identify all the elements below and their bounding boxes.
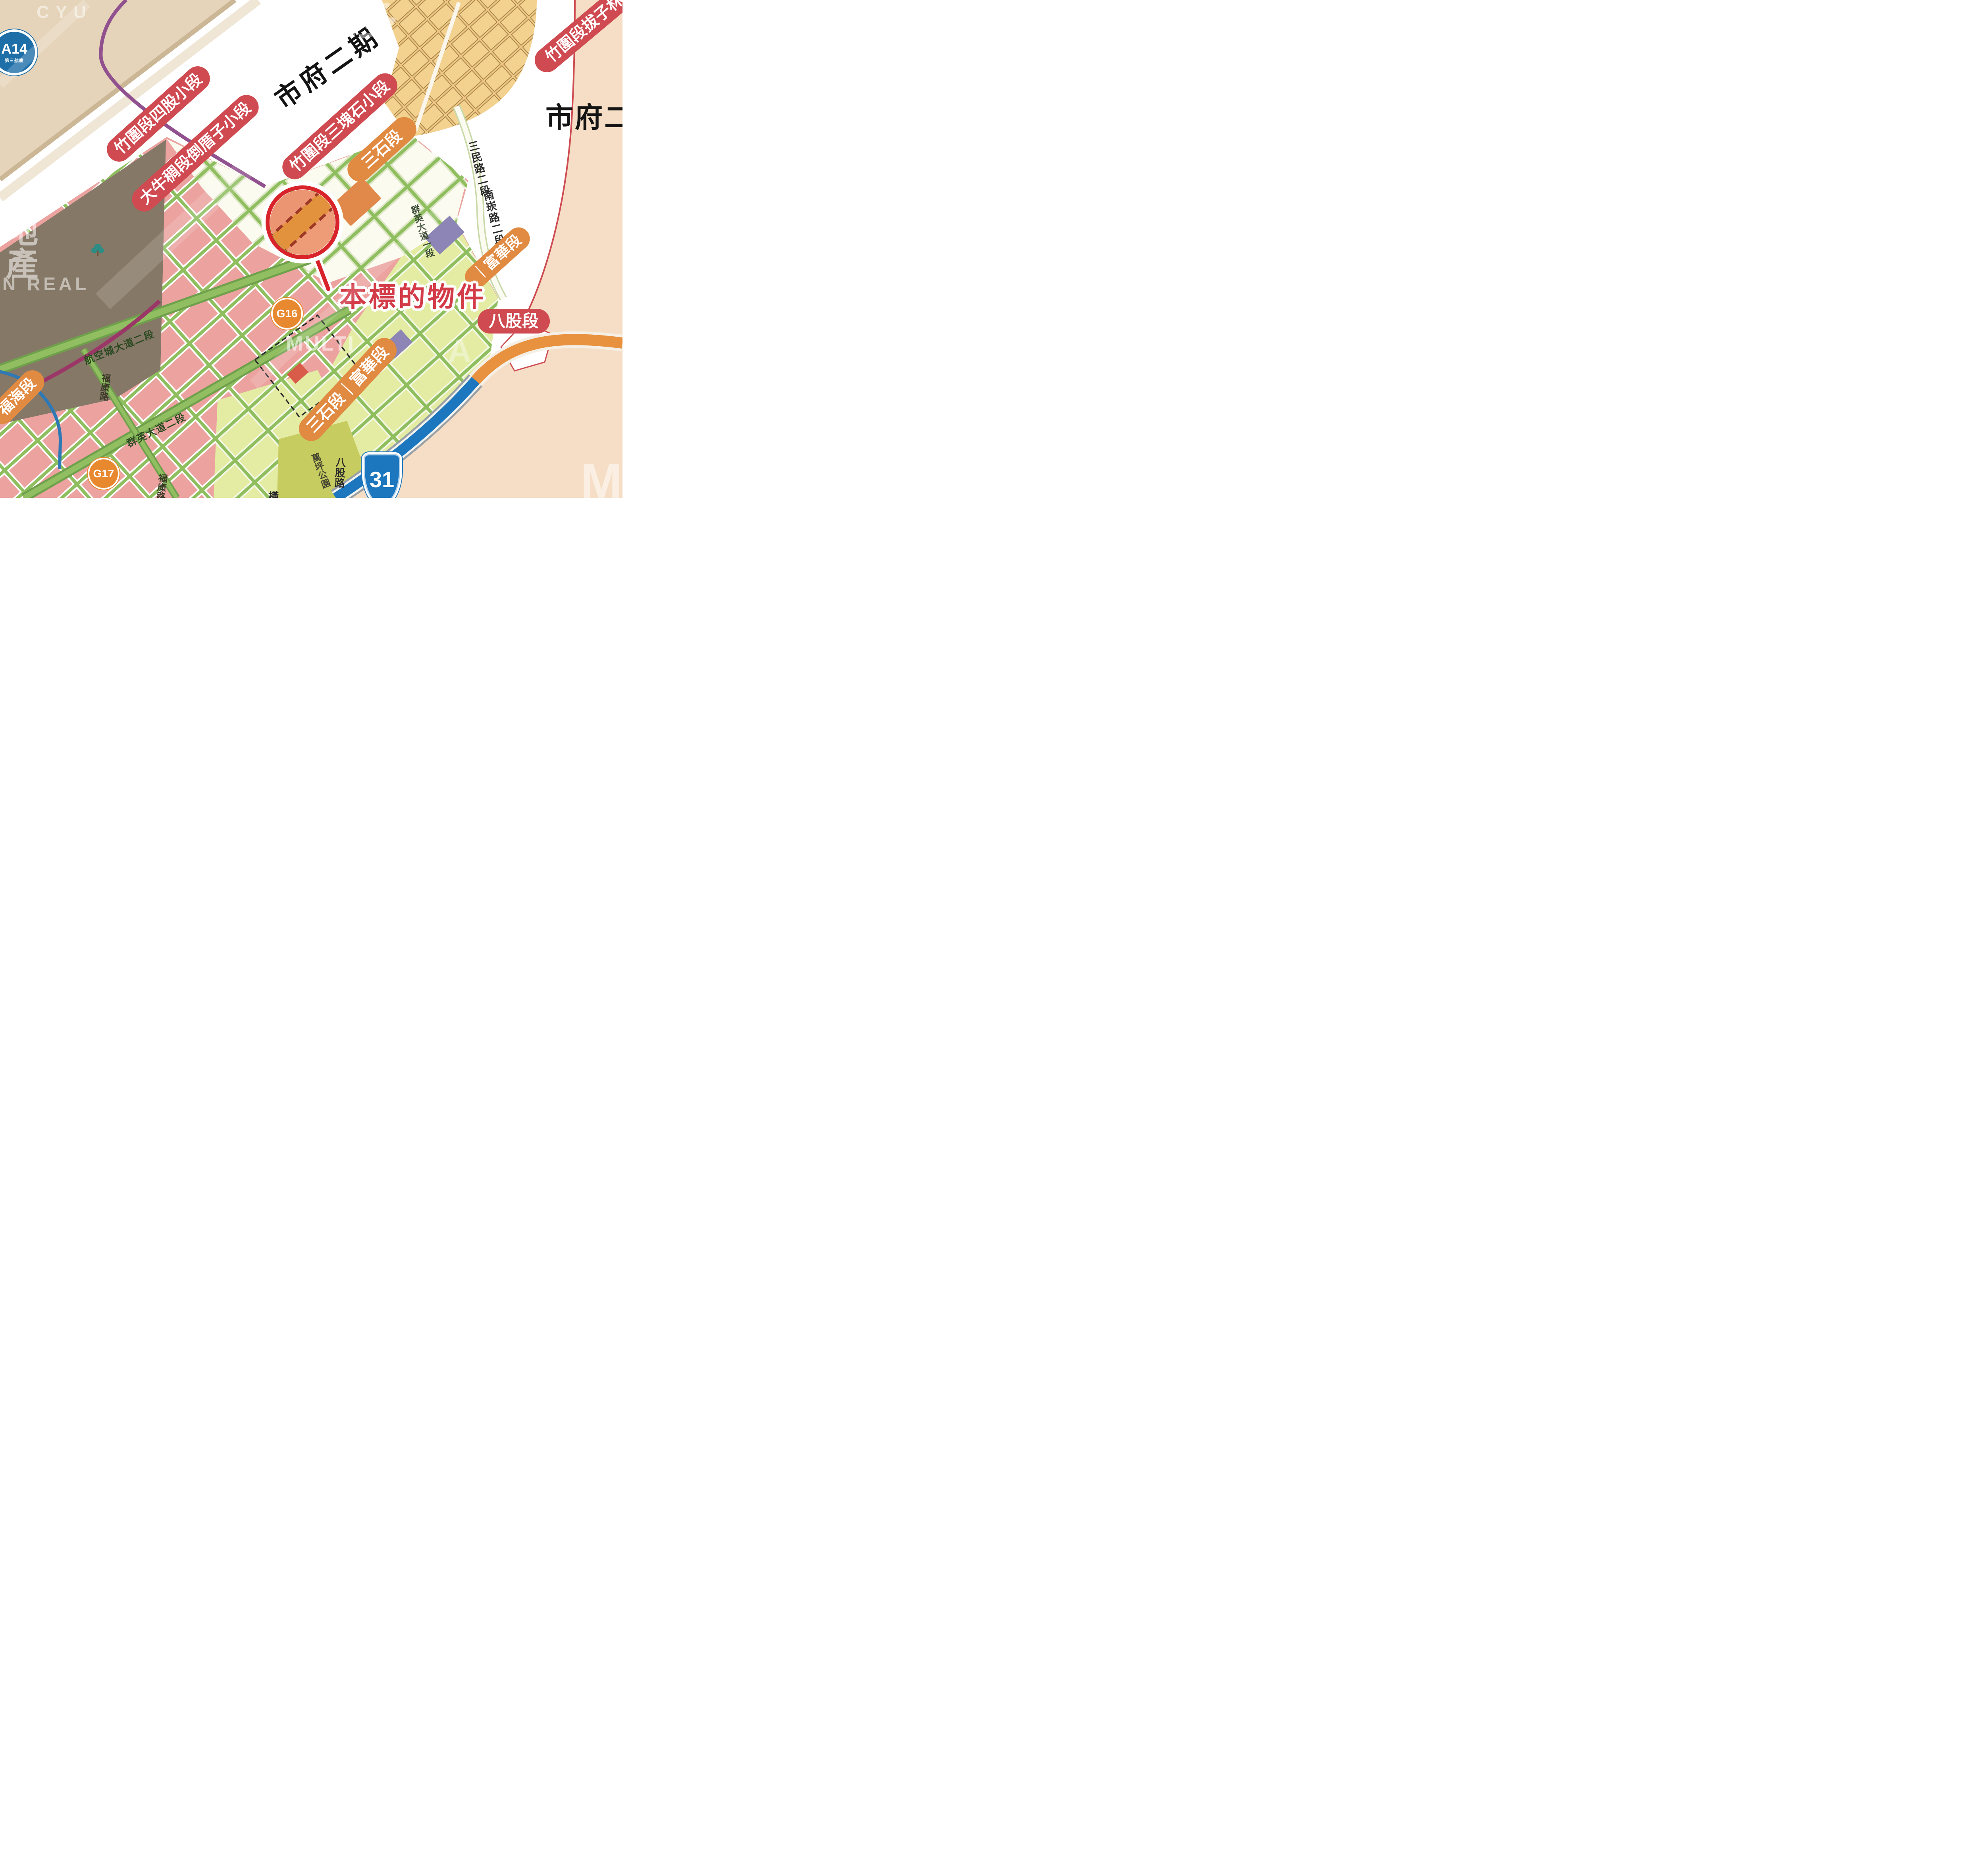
partial-road-char: 橫 [268,488,279,498]
road-label-fukang-2: 福康路 [153,473,169,498]
station-g17: G17 [88,458,119,490]
district-right-title: 市府二 [545,95,622,135]
road-label-fukang-1: 福康路 [96,373,112,401]
pill-bagu: 八股段 [478,309,550,334]
station-a14-code: A14 [1,42,27,56]
map-canvas: 三民路二段 南崁路二段 群英大道一段 航空城大道二段 福康路 群英大道二段 福康… [0,0,622,498]
station-a14-subtitle: 第三航廈 [5,57,24,64]
road-label-bagu-road: 八股路 [331,457,348,488]
highway-31-shield: 31 [362,452,402,498]
station-g16: G16 [271,298,303,330]
target-property-label: 本標的物件 [339,275,486,314]
